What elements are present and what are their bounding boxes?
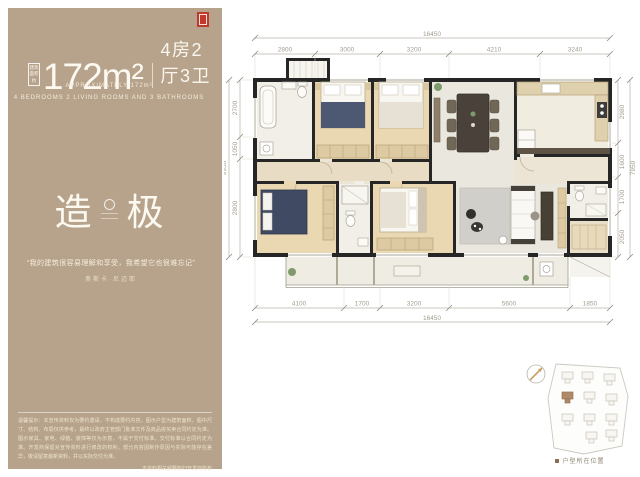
english-caption: APPROXIMATELY 172m² 4 BEDROOMS 2 LIVING …	[8, 80, 210, 104]
logo-char-2: 极	[127, 194, 164, 231]
dim-right-1: 2980	[619, 104, 626, 119]
dim-left-2: 1050	[232, 141, 239, 156]
red-seal-icon	[197, 12, 209, 27]
bedroom-1	[315, 82, 371, 158]
legal-block: 温馨提示：本宣传资料仅为要约邀请，不构成要约内容。图示户型为建筑面积，图中尺寸、…	[18, 412, 212, 477]
bedroom-center	[377, 188, 433, 250]
quote-text: “我的建筑很容易理解和享受，我希望它也很难忘记”	[13, 258, 209, 268]
logo-circle-icon	[104, 199, 115, 210]
location-square-icon	[555, 459, 559, 463]
dim-right-total: 7950	[630, 160, 637, 175]
dim-top-1: 2800	[278, 47, 293, 54]
dim-bottom-4: 5600	[502, 301, 517, 308]
dim-top-4: 4210	[487, 47, 502, 54]
compass-icon	[527, 365, 545, 383]
site-caption-text: 户型所在位置	[562, 459, 604, 465]
dim-right-3: 1700	[619, 189, 626, 204]
disclaimer-text: 温馨提示：本宣传资料仅为要约邀请，不构成要约内容。图示户型为建筑面积，图中尺寸、…	[18, 417, 212, 462]
bedroom-2	[374, 82, 429, 158]
dim-top-3: 3200	[407, 47, 422, 54]
dim-bottom-1: 4100	[292, 301, 307, 308]
quote-author: 奥斯卡·尼迈耶	[13, 274, 209, 283]
site-caption: 户型所在位置	[522, 456, 638, 465]
caption-line2: 4 BEDROOMS 2 LIVING ROOMS AND 3 BATHROOM…	[8, 92, 210, 104]
dim-right-4: 2050	[619, 229, 626, 244]
living-room	[460, 186, 566, 248]
dim-top-2: 3000	[340, 47, 355, 54]
logo-char-1: 造	[55, 194, 92, 231]
dim-right-2: 1600	[619, 154, 626, 169]
advertisement-page: 建筑 面积 约 172m² 4房2厅3卫 APPROXIMATELY 172m²…	[0, 0, 640, 477]
info-panel: 建筑 面积 约 172m² 4房2厅3卫 APPROXIMATELY 172m²…	[8, 8, 222, 469]
dim-bottom-5: 1850	[583, 301, 598, 308]
caption-line1: APPROXIMATELY 172m²	[8, 80, 210, 92]
dim-left-3: 2800	[232, 200, 239, 215]
dim-bottom-total: 16450	[423, 315, 441, 322]
bedroom-lower-left	[261, 186, 334, 240]
dim-bottom-3: 3200	[407, 301, 422, 308]
brand-logo: 造 极	[8, 194, 210, 231]
dim-top-5: 3240	[568, 47, 583, 54]
dim-left-1: 2700	[232, 100, 239, 115]
floor-plan: 16450 2800 3000 3200 4210 3240 4100 1700…	[224, 26, 638, 344]
footnote-line1: 本资料相关解释权归开发商所有	[18, 465, 212, 474]
dim-top-total: 16450	[423, 31, 441, 38]
dim-left-total: 9950	[224, 160, 228, 175]
dim-bottom-2: 1700	[355, 301, 370, 308]
site-plan	[522, 358, 638, 458]
